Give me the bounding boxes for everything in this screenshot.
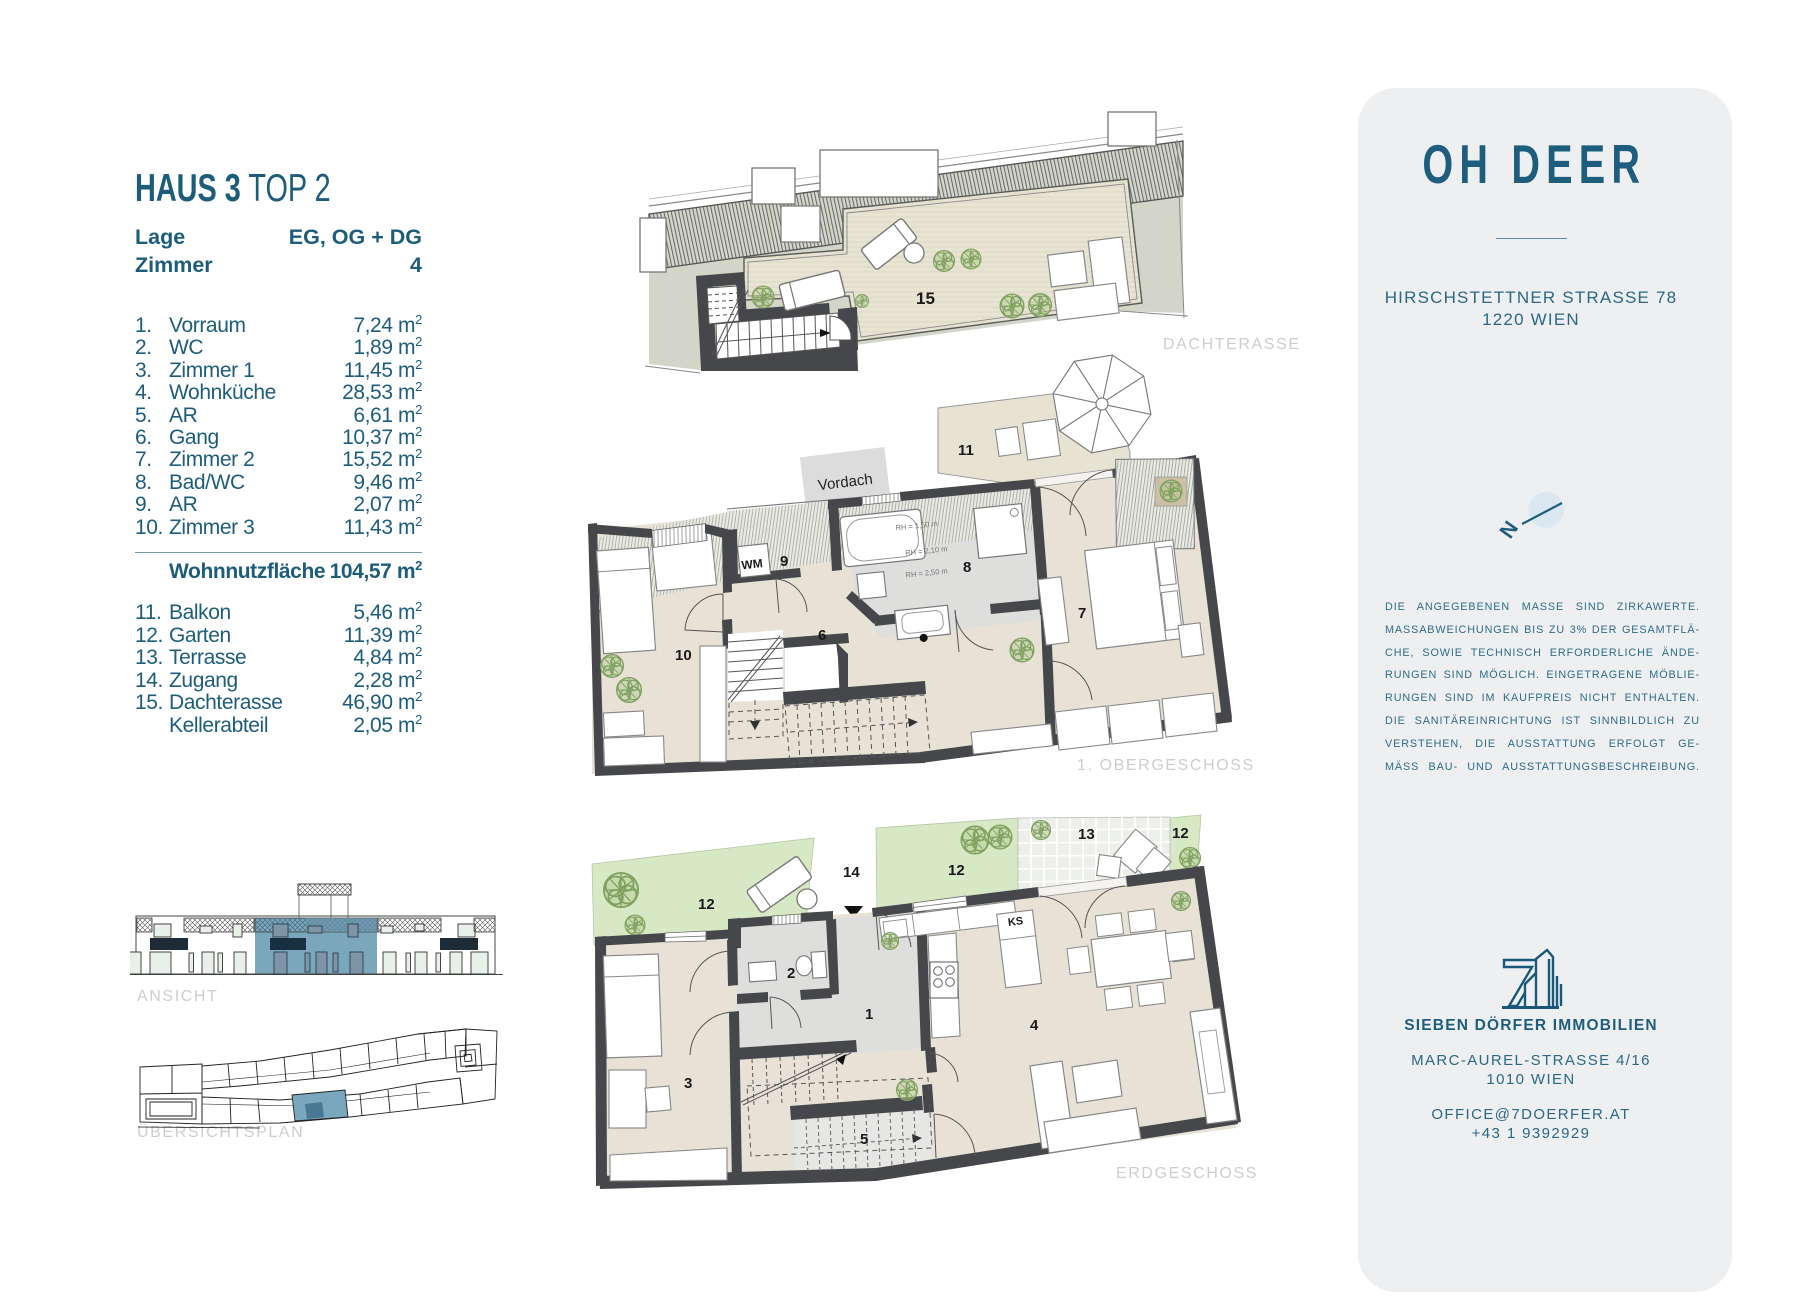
- svg-text:4: 4: [1030, 1017, 1039, 1034]
- svg-text:2: 2: [787, 965, 795, 982]
- svg-text:13: 13: [1078, 826, 1095, 843]
- svg-text:11: 11: [958, 442, 974, 459]
- svg-text:7: 7: [1078, 605, 1086, 622]
- svg-text:10: 10: [675, 647, 692, 664]
- svg-text:8: 8: [963, 559, 971, 576]
- svg-text:9: 9: [780, 553, 788, 570]
- svg-text:12: 12: [948, 862, 965, 879]
- svg-text:14: 14: [843, 864, 860, 881]
- svg-text:12: 12: [1172, 825, 1189, 842]
- svg-text:KS: KS: [1007, 915, 1024, 929]
- svg-text:6: 6: [818, 627, 826, 644]
- svg-text:12: 12: [698, 896, 715, 913]
- svg-text:WM: WM: [741, 556, 764, 572]
- svg-text:N: N: [1496, 517, 1524, 543]
- svg-text:1: 1: [865, 1006, 873, 1023]
- svg-text:5: 5: [860, 1131, 868, 1148]
- svg-text:3: 3: [684, 1075, 692, 1092]
- svg-text:15: 15: [916, 289, 935, 308]
